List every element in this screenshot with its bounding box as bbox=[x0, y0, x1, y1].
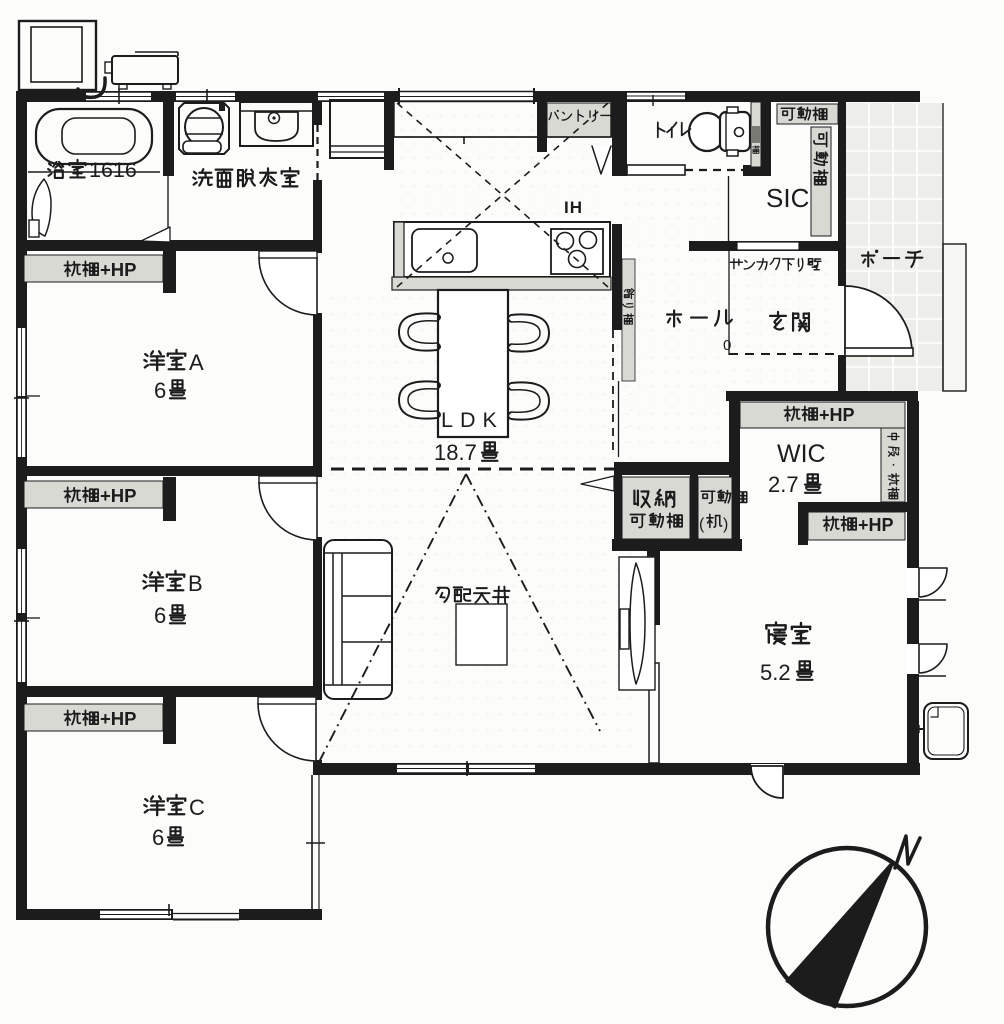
svg-text:IH: IH bbox=[564, 198, 583, 217]
svg-text:SIC: SIC bbox=[766, 183, 809, 213]
svg-text:1616: 1616 bbox=[89, 158, 137, 182]
svg-text:+HP: +HP bbox=[100, 708, 137, 729]
svg-text:): ) bbox=[723, 516, 728, 533]
svg-text:+HP: +HP bbox=[100, 259, 137, 280]
svg-text:B: B bbox=[188, 571, 203, 596]
svg-text:+HP: +HP bbox=[858, 515, 894, 535]
svg-text:2.7: 2.7 bbox=[768, 472, 799, 497]
svg-text:WIC: WIC bbox=[777, 440, 826, 468]
svg-text:6: 6 bbox=[152, 825, 164, 850]
svg-text:6: 6 bbox=[154, 603, 166, 628]
svg-text:LDK: LDK bbox=[441, 408, 504, 432]
svg-text:5.2: 5.2 bbox=[760, 660, 791, 685]
svg-text:(: ( bbox=[699, 516, 705, 533]
svg-text:+HP: +HP bbox=[819, 405, 855, 425]
svg-text:18.7: 18.7 bbox=[434, 440, 477, 465]
svg-text:+HP: +HP bbox=[100, 485, 137, 506]
svg-text:C: C bbox=[189, 795, 205, 820]
svg-text:A: A bbox=[189, 350, 204, 375]
svg-text:0: 0 bbox=[723, 337, 731, 354]
svg-text:6: 6 bbox=[154, 378, 166, 403]
